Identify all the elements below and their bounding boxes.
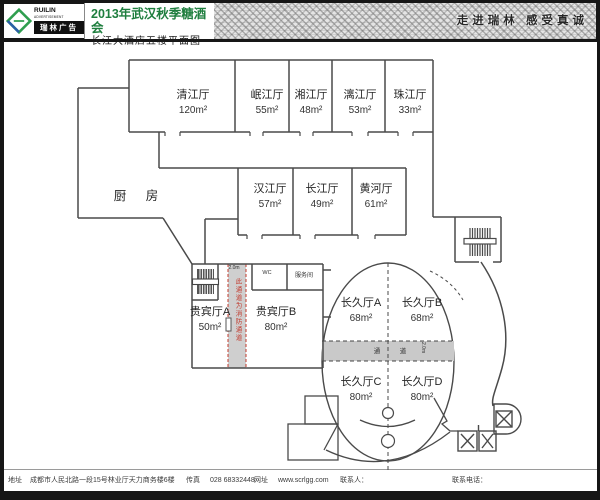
room-area: 33m² [394,105,427,117]
room-name: 湘江厅 [295,89,328,102]
dashed-arc [430,271,463,300]
room-label-vip-a: 贵宾厅A50m² [190,306,230,334]
room-label-changjiu-c: 长久厅C80m² [341,376,382,404]
room-name: 长久厅A [341,297,381,310]
room-name: 漓江厅 [344,89,377,102]
room-area: 57m² [254,199,287,211]
stage-fan-lines [288,396,458,462]
room-name: 珠江厅 [394,89,427,102]
room-area: 50m² [190,322,230,334]
room-label-vip-b: 贵宾厅B80m² [256,306,296,334]
room-area: 120m² [177,105,210,117]
aisle-char-left: 通 [374,345,381,355]
room-label-hanjiang: 汉江厅57m² [254,183,287,211]
fire-corridor-note: 此通道为消防通道 [230,278,244,364]
room-area: 68m² [402,313,442,325]
kitchen-label: 厨 房 [114,185,166,204]
room-area: 61m² [360,199,393,211]
room-name: 贵宾厅A [190,306,230,319]
room-area: 48m² [295,105,328,117]
wc-label: WC [262,270,271,276]
room-area: 80m² [256,322,296,334]
room-name: 汉江厅 [254,183,287,196]
room-name: 岷江厅 [251,89,284,102]
room-area: 53m² [344,105,377,117]
room-area: 68m² [341,313,381,325]
room-name: 长久厅C [341,376,382,389]
room-area: 55m² [251,105,284,117]
staircase-icon-right [464,228,496,256]
room-label-qingjiang: 清江厅120m² [177,89,210,117]
room-area: 80m² [402,392,443,404]
floor-plan-page: 清江厅120m² 岷江厅55m² 湘江厅48m² 漓江厅53m² 珠江厅33m²… [0,0,600,500]
room-name: 长久厅B [402,297,442,310]
room-label-xiangjiang: 湘江厅48m² [295,89,328,117]
fire-corridor-width-label: 2.0m [228,265,239,271]
room-label-changjiu-a: 长久厅A68m² [341,297,381,325]
staircase-icon-vip [193,269,219,294]
room-label-lijiang: 漓江厅53m² [344,89,377,117]
room-label-zhujiang: 珠江厅33m² [394,89,427,117]
aisle-char-right: 道 [400,345,407,355]
room-label-minjiang: 岷江厅55m² [251,89,284,117]
room-label-changjiu-d: 长久厅D80m² [402,376,443,404]
room-name: 贵宾厅B [256,306,296,319]
floor-plan-drawing [0,0,600,500]
room-name: 长久厅D [402,376,443,389]
room-area: 80m² [341,392,382,404]
elevator-icons [458,404,521,451]
room-name: 清江厅 [177,89,210,102]
room-label-changjiu-b: 长久厅B68m² [402,297,442,325]
room-area: 49m² [306,199,339,211]
room-label-changjiang: 长江厅49m² [306,183,339,211]
room-name: 黄河厅 [360,183,393,196]
room-label-huanghe: 黄河厅61m² [360,183,393,211]
service-room-label: 服务间 [295,270,313,279]
room-name: 长江厅 [306,183,339,196]
aisle-width-label: 2.0m [420,342,426,353]
